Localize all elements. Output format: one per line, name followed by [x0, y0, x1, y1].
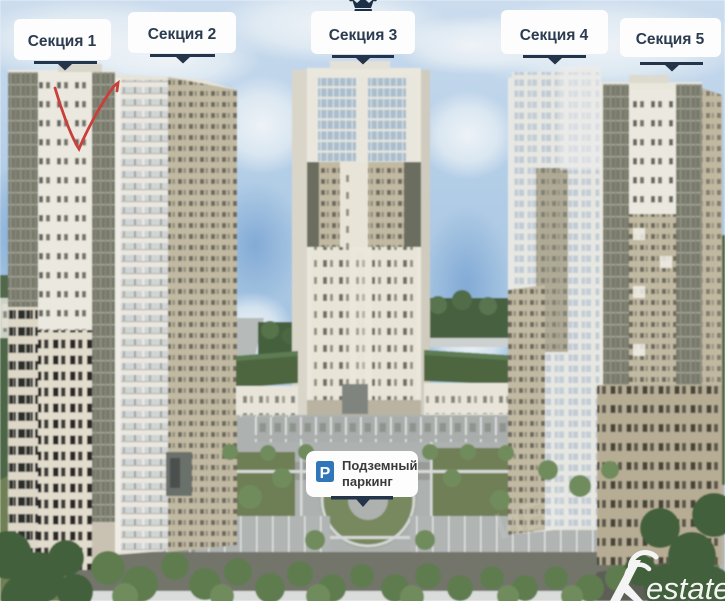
svg-text:паркинг: паркинг	[342, 474, 393, 489]
svg-text:Секция 3: Секция 3	[329, 27, 398, 44]
svg-text:P: P	[320, 465, 331, 482]
svg-text:Секция 5: Секция 5	[636, 31, 705, 48]
svg-text:estate: estate	[646, 571, 725, 601]
svg-text:Секция 4: Секция 4	[520, 27, 589, 44]
svg-text:Секция 2: Секция 2	[148, 26, 217, 43]
svg-text:Секция 1: Секция 1	[28, 33, 97, 50]
svg-text:Подземный: Подземный	[342, 458, 417, 473]
